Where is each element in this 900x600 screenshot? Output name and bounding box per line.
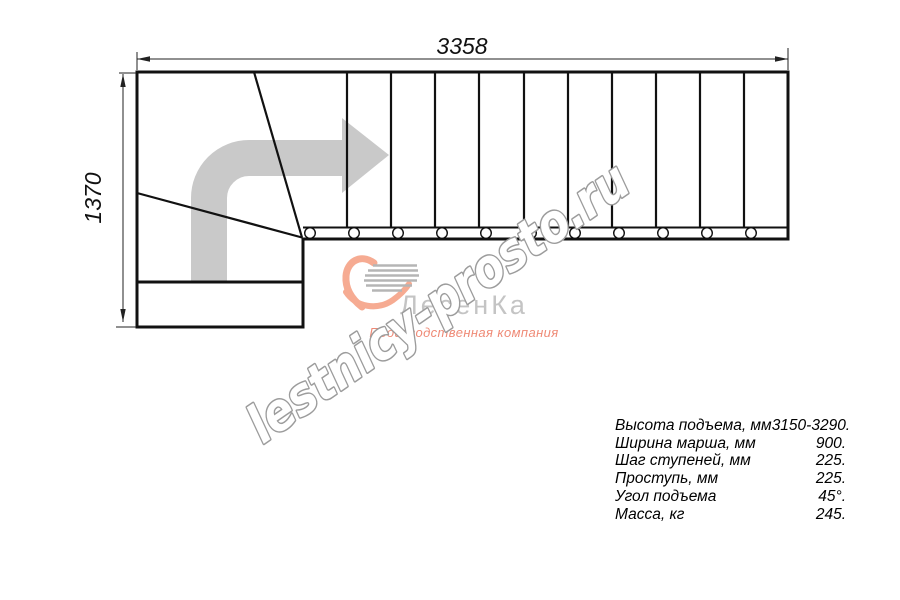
- watermark-layer: lestnicy-prosto.ru: [0, 0, 900, 600]
- watermark-text: lestnicy-prosto.ru: [236, 151, 641, 455]
- staircase-drawing-page: 3358 1370 ЛесенКа Произво: [0, 0, 900, 600]
